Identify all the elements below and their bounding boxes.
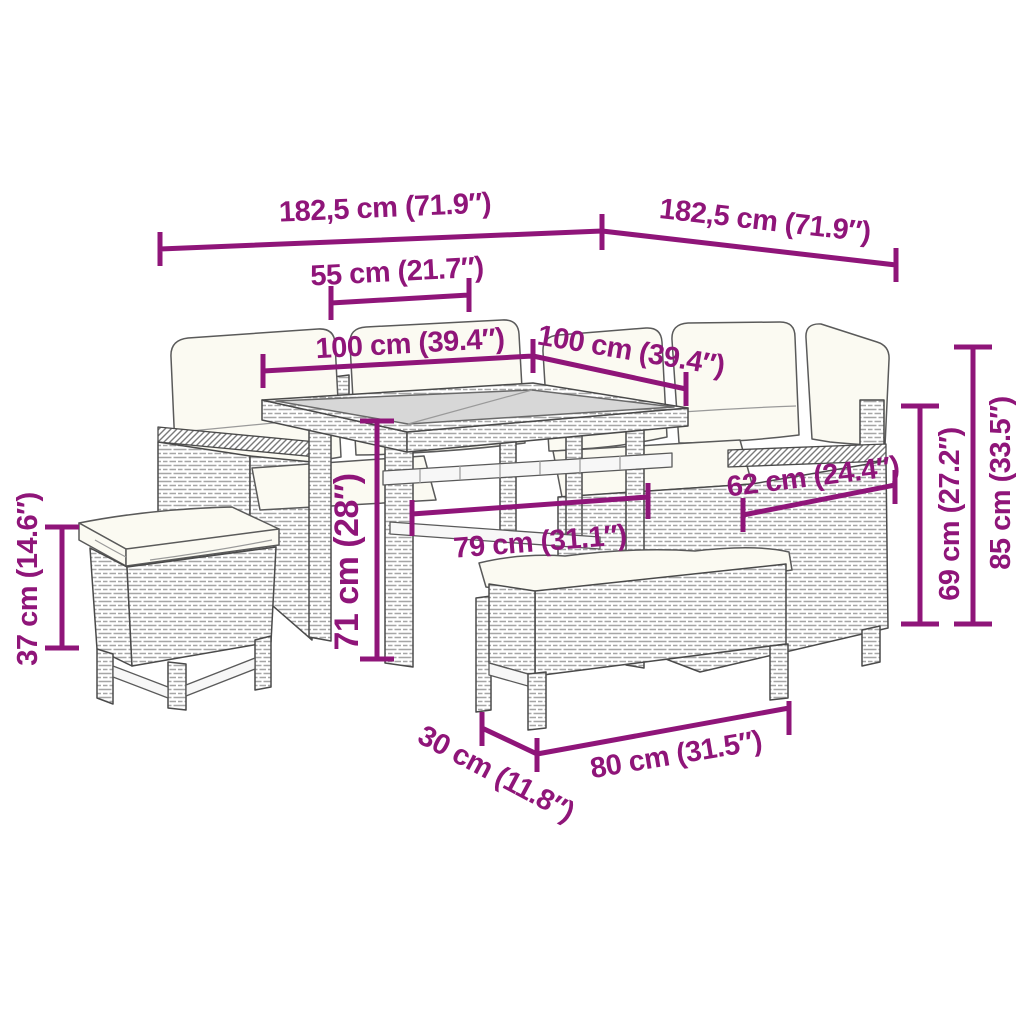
stool-with-cushion xyxy=(79,507,279,710)
back-cushion xyxy=(672,322,799,443)
stool-body xyxy=(90,548,132,666)
dim-line-stool-height xyxy=(45,527,79,648)
sofa-right-leg xyxy=(862,626,880,666)
stool-body xyxy=(127,547,276,666)
dim-label-stool-height: 37 cm (14.6″) xyxy=(12,492,44,665)
bench-with-cushion xyxy=(476,548,792,730)
stool-leg xyxy=(255,636,271,690)
dim-label-bench-length: 80 cm (31.5″) xyxy=(588,725,764,785)
bench-side xyxy=(489,584,535,676)
dim-label-table-half-top-width: 55 cm (21.7″) xyxy=(310,251,485,292)
dimension-diagram: 182,5 cm (71.9″) 182,5 cm (71.9″) 55 cm … xyxy=(0,0,1024,1024)
stool-stretcher xyxy=(186,658,255,696)
stool-leg xyxy=(168,662,186,710)
dim-label-sofa-left-length: 182,5 cm (71.9″) xyxy=(278,187,491,228)
bench-leg xyxy=(528,672,546,730)
dim-label-table-height: 71 cm (28″) xyxy=(328,473,366,650)
diagram-svg: 182,5 cm (71.9″) 182,5 cm (71.9″) 55 cm … xyxy=(0,0,1024,1024)
dim-label-armrest-height: 69 cm (27.2″) xyxy=(934,427,966,600)
stool-stretcher xyxy=(113,666,168,698)
stool-leg xyxy=(97,649,113,704)
dim-label-overall-height: 85 cm (33.5″) xyxy=(985,396,1017,569)
bench-leg xyxy=(770,644,788,700)
table-leg xyxy=(385,430,413,667)
